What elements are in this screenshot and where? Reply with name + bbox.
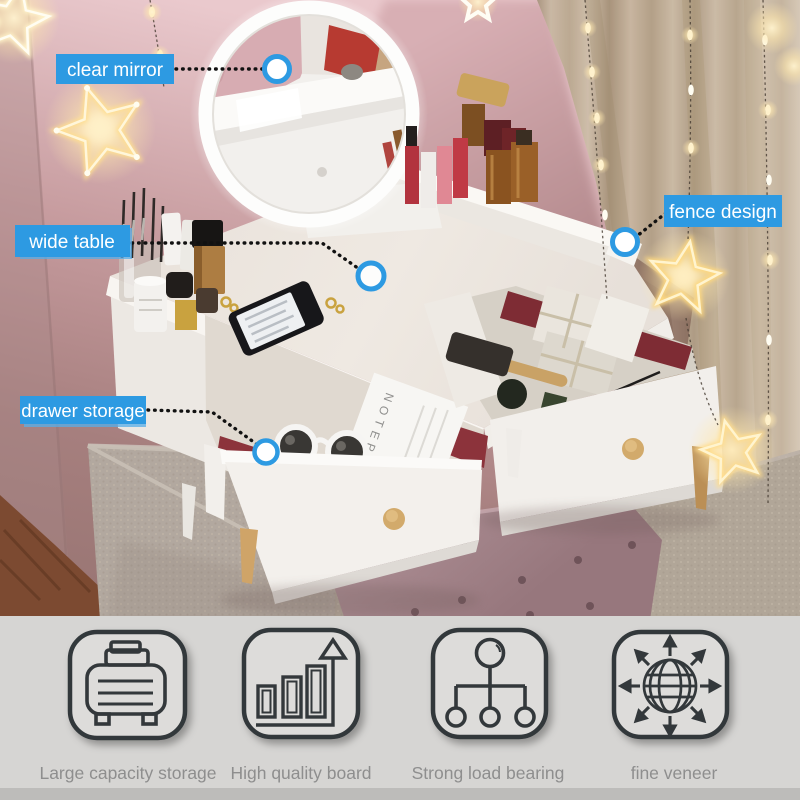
svg-text:Large capacity storage: Large capacity storage [39, 763, 216, 783]
svg-text:drawer storage: drawer storage [21, 400, 144, 421]
svg-text:High quality board: High quality board [230, 763, 371, 783]
svg-text:fine veneer: fine veneer [631, 763, 718, 783]
svg-text:clear mirror: clear mirror [67, 60, 164, 81]
svg-text:Strong load bearing: Strong load bearing [412, 763, 565, 783]
svg-text:wide table: wide table [28, 232, 115, 253]
svg-text:fence design: fence design [669, 202, 777, 223]
